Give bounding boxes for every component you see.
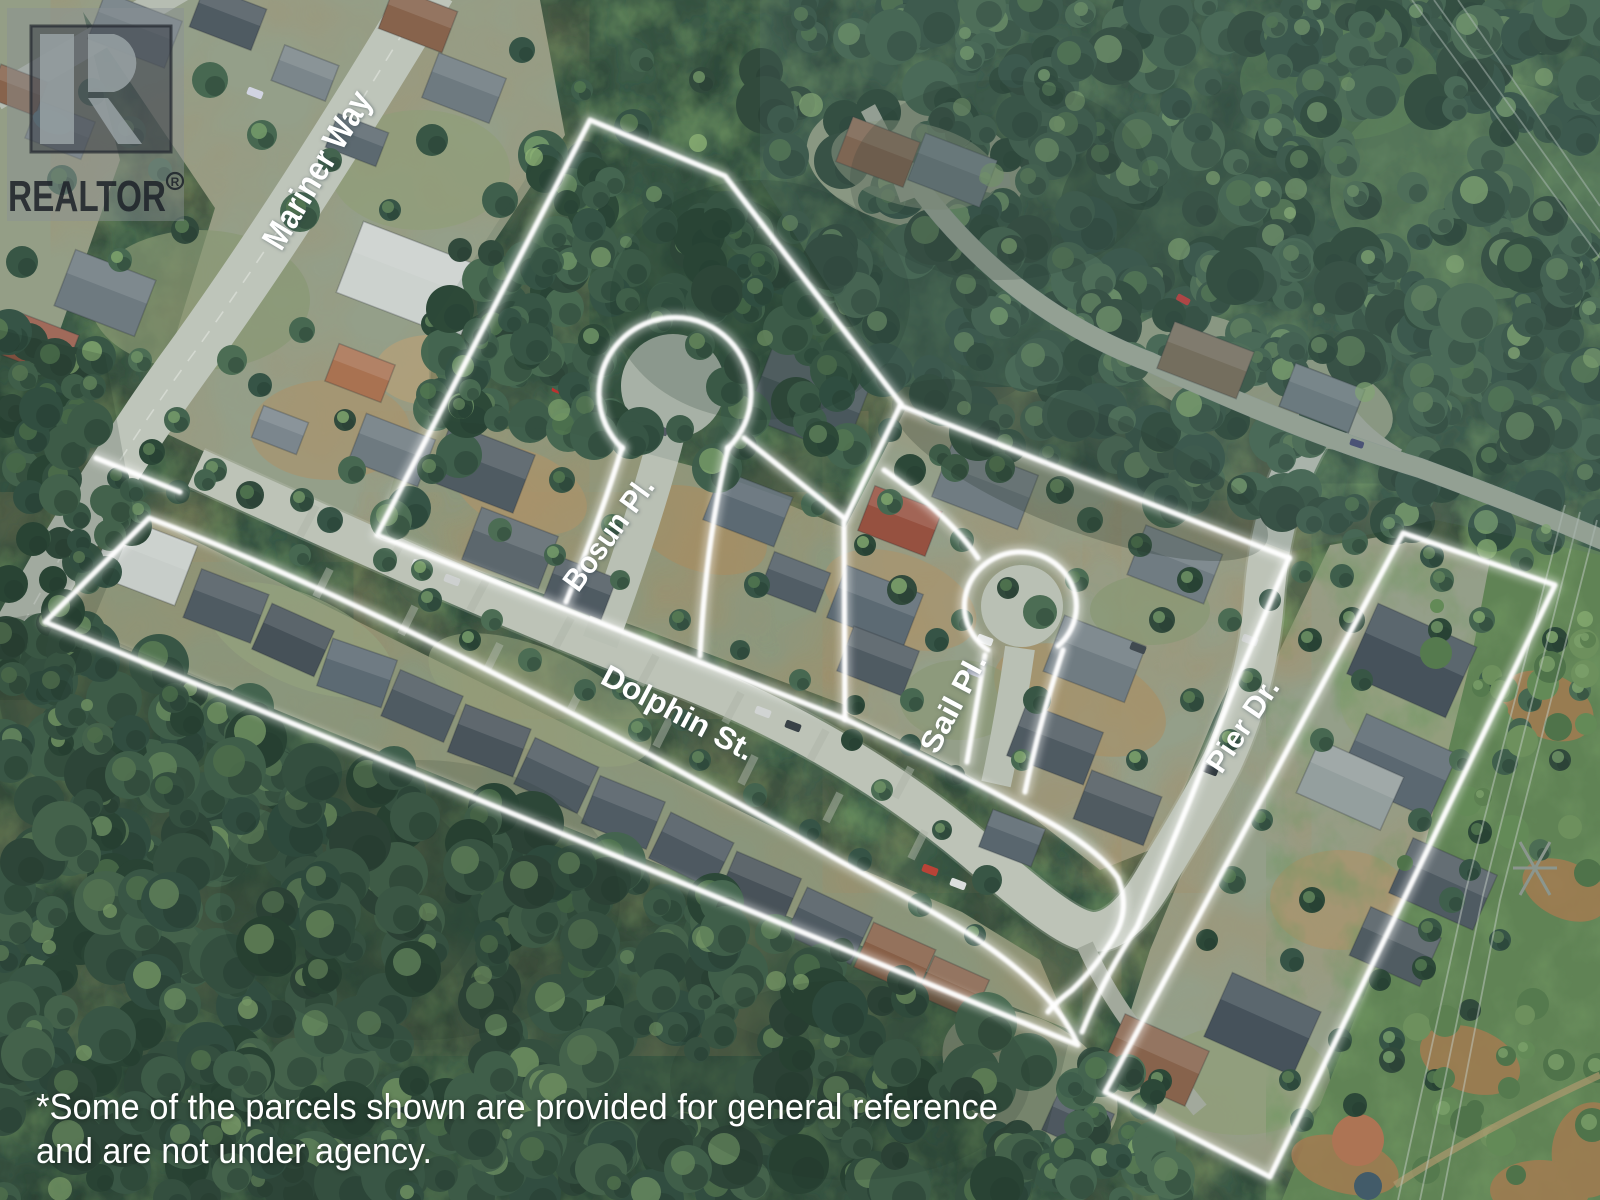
svg-text:*Some of the parcels shown are: *Some of the parcels shown are provided … — [36, 1086, 998, 1127]
svg-text:R: R — [171, 175, 180, 189]
svg-text:REALTOR: REALTOR — [8, 172, 166, 221]
svg-text:and are not under agency.: and are not under agency. — [36, 1130, 432, 1171]
